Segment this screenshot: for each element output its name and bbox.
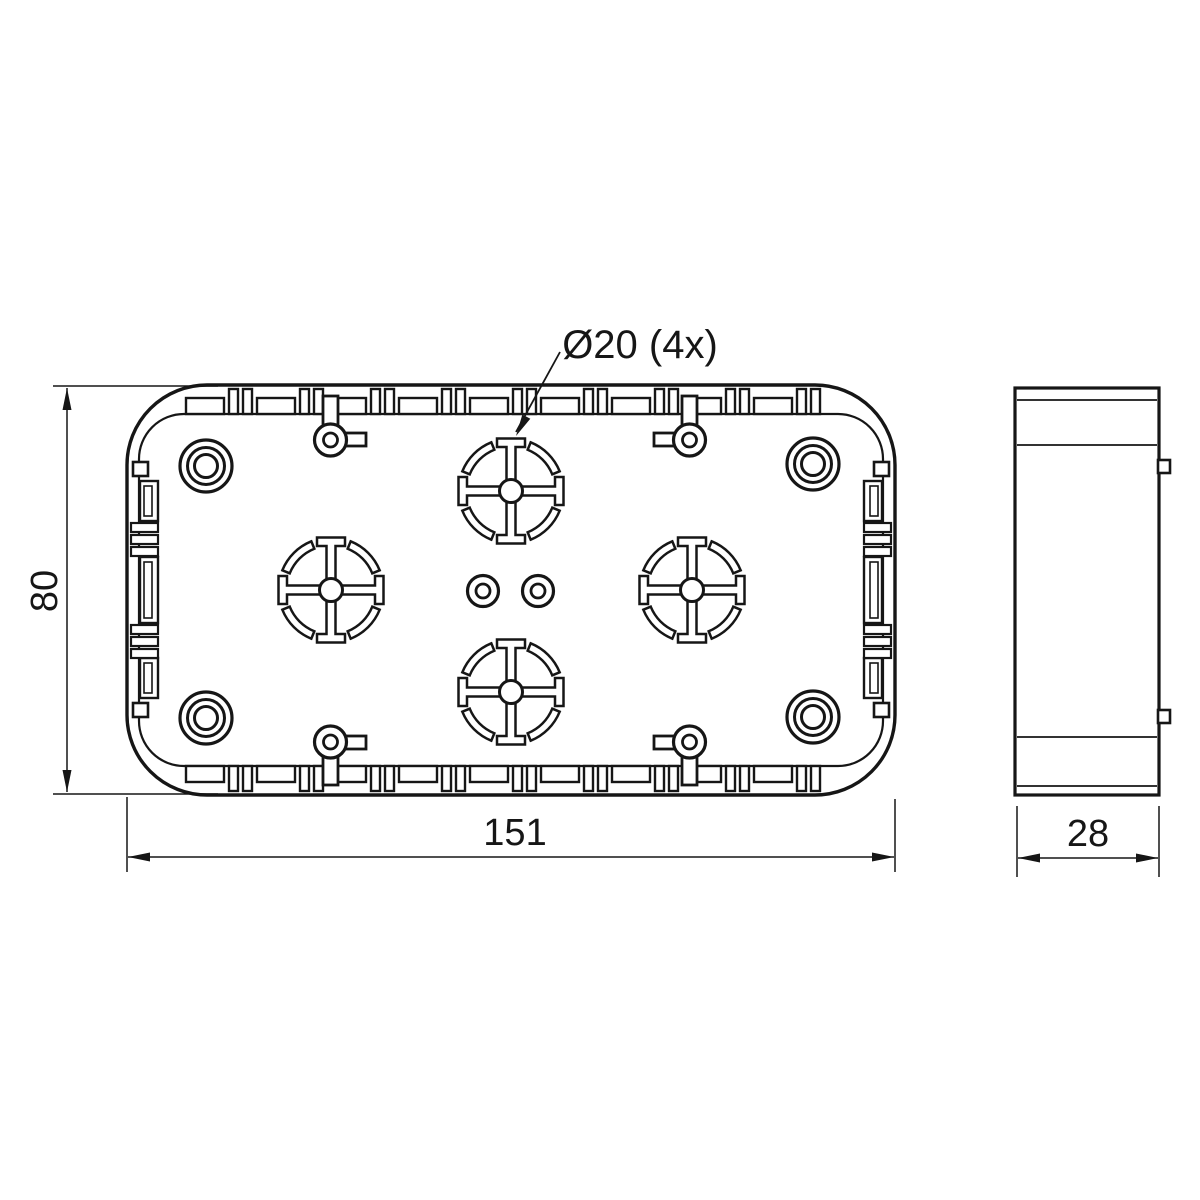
knockout-arc-segment [462, 643, 494, 675]
rail-tall-section [864, 557, 882, 623]
screw-boss-inner-circle [802, 706, 825, 729]
knockout-spoke [459, 477, 502, 505]
band-notch-narrow [598, 389, 607, 414]
side-view-upper-tab [1158, 460, 1170, 473]
band-notch-narrow [655, 766, 664, 791]
knockout-center-circle [500, 480, 523, 503]
knockout-arc-segment [282, 541, 314, 573]
height-arrow-down [63, 770, 72, 792]
band-notch-narrow [797, 389, 806, 414]
band-notch-narrow [371, 766, 380, 791]
band-notch-narrow [456, 766, 465, 791]
knockout-spoke [640, 576, 683, 604]
rail-tall-section [140, 481, 158, 521]
width-dimension: 151 [127, 797, 895, 872]
rail-edge-tab [133, 703, 148, 717]
knockout-spoke [279, 576, 322, 604]
knockout-spoke [497, 702, 525, 745]
rail-tall-section [864, 481, 882, 521]
callout-leader-arrowhead [516, 414, 530, 436]
knockout-arc-segment [462, 709, 494, 741]
band-notch-narrow [371, 389, 380, 414]
knockout-arc-segment [643, 541, 675, 573]
center-screw-holes [468, 576, 554, 607]
band-notch-narrow [740, 766, 749, 791]
side-view [1015, 388, 1170, 795]
rail-ladder-row [864, 637, 891, 646]
side-view-body [1015, 388, 1159, 795]
knockout-arc-segment [528, 442, 560, 474]
band-notch-narrow [456, 389, 465, 414]
knockout-spoke [497, 640, 525, 683]
rail-ladder-row [131, 637, 158, 646]
band-notch-narrow [300, 766, 309, 791]
knockout-spoke [497, 439, 525, 482]
bottom-edge-notches [186, 766, 820, 791]
band-notch-narrow [385, 766, 394, 791]
width-arrow-right [872, 853, 894, 862]
rail-edge-tab [133, 462, 148, 476]
depth-dimension-label: 28 [1067, 813, 1109, 855]
band-notch-narrow [655, 389, 664, 414]
band-notch-narrow [229, 766, 238, 791]
screw-boss-inner-circle [195, 707, 218, 730]
rail-ladder-row [864, 535, 891, 544]
band-notch-wide [257, 766, 295, 782]
knockout-spoke [497, 501, 525, 544]
rail-edge-tab [874, 462, 889, 476]
band-notch-narrow [243, 766, 252, 791]
rail-tall-section [140, 557, 158, 623]
band-notch-wide [541, 398, 579, 414]
center-hole-inner [531, 584, 545, 598]
rail-ladder-row [864, 649, 891, 658]
knockout-arc-segment [709, 607, 741, 639]
callout-arrowhead [516, 414, 530, 436]
band-notch-narrow [598, 766, 607, 791]
band-notch-wide [470, 766, 508, 782]
band-notch-wide [541, 766, 579, 782]
band-notch-narrow [740, 389, 749, 414]
height-dimension-label: 80 [24, 570, 66, 612]
height-arrow-up [63, 388, 72, 410]
rail-ladder-row [864, 625, 891, 634]
knockout-arc-segment [282, 607, 314, 639]
band-notch-wide [612, 398, 650, 414]
knockout-center-circle [500, 681, 523, 704]
side-view-lower-tab [1158, 710, 1170, 723]
band-notch-narrow [385, 389, 394, 414]
depth-arrow-left [1018, 854, 1040, 863]
rail-ladder-row [131, 535, 158, 544]
screw-boss-inner-circle [195, 455, 218, 478]
knockout-spoke [678, 600, 706, 643]
rail-ladder-row [131, 547, 158, 556]
band-notch-wide [186, 766, 224, 782]
knockout-hole [640, 538, 745, 643]
band-notch-narrow [726, 766, 735, 791]
knockout-center-circle [681, 579, 704, 602]
band-notch-narrow [669, 389, 678, 414]
band-notch-narrow [229, 389, 238, 414]
knockout-arc-segment [643, 607, 675, 639]
knockout-spoke [702, 576, 745, 604]
knockout-spoke [317, 538, 345, 581]
knockout-arc-segment [528, 709, 560, 741]
technical-drawing-canvas: 80 151 28 Ø20 (4x) [0, 0, 1200, 1200]
knockout-center-circle [320, 579, 343, 602]
knockout-arc-segment [462, 442, 494, 474]
band-notch-wide [754, 398, 792, 414]
claw-hole [683, 433, 697, 447]
band-notch-wide [470, 398, 508, 414]
claw-hole [324, 433, 338, 447]
band-notch-narrow [442, 766, 451, 791]
band-notch-narrow [669, 766, 678, 791]
band-notch-narrow [811, 389, 820, 414]
knockout-spoke [317, 600, 345, 643]
band-notch-narrow [797, 766, 806, 791]
knockout-spoke [459, 678, 502, 706]
knockout-hole [459, 439, 564, 544]
knockout-arc-segment [528, 508, 560, 540]
rail-tall-section [140, 658, 158, 698]
rail-ladder-row [864, 523, 891, 532]
front-view [127, 385, 895, 795]
knockout-arc-segment [462, 508, 494, 540]
band-notch-narrow [584, 389, 593, 414]
right-mounting-rail [864, 462, 891, 717]
band-notch-narrow [243, 389, 252, 414]
claw-hole [324, 735, 338, 749]
claw-hole [683, 735, 697, 749]
rail-edge-tab [874, 703, 889, 717]
knockout-arc-segment [709, 541, 741, 573]
knockout-arc-segment [348, 607, 380, 639]
rail-ladder-row [131, 649, 158, 658]
knockout-hole [279, 538, 384, 643]
band-notch-wide [186, 398, 224, 414]
knockout-spoke [521, 477, 564, 505]
rail-ladder-row [131, 625, 158, 634]
band-notch-narrow [527, 766, 536, 791]
center-hole-inner [476, 584, 490, 598]
knockout-holes [279, 439, 745, 745]
band-notch-wide [257, 398, 295, 414]
callout-label: Ø20 (4x) [562, 323, 718, 367]
band-notch-narrow [513, 389, 522, 414]
band-notch-wide [399, 766, 437, 782]
band-notch-narrow [300, 389, 309, 414]
knockout-hole [459, 640, 564, 745]
knockout-spoke [678, 538, 706, 581]
depth-arrow-right [1136, 854, 1158, 863]
rail-ladder-row [864, 547, 891, 556]
band-notch-narrow [811, 766, 820, 791]
knockout-spoke [341, 576, 384, 604]
junction-box-technical-drawing: 80 151 28 Ø20 (4x) [0, 0, 1200, 1200]
width-dimension-label: 151 [483, 812, 546, 854]
rail-ladder-row [131, 523, 158, 532]
band-notch-narrow [726, 389, 735, 414]
band-notch-narrow [584, 766, 593, 791]
band-notch-wide [399, 398, 437, 414]
top-edge-notches [186, 389, 820, 414]
rail-tall-section [864, 658, 882, 698]
knockout-arc-segment [348, 541, 380, 573]
band-notch-narrow [442, 389, 451, 414]
band-notch-wide [754, 766, 792, 782]
band-notch-narrow [513, 766, 522, 791]
knockout-spoke [521, 678, 564, 706]
screw-boss-inner-circle [802, 453, 825, 476]
depth-dimension: 28 [1017, 806, 1159, 877]
width-arrow-left [128, 853, 150, 862]
left-mounting-rail [131, 462, 158, 717]
knockout-arc-segment [528, 643, 560, 675]
band-notch-wide [612, 766, 650, 782]
